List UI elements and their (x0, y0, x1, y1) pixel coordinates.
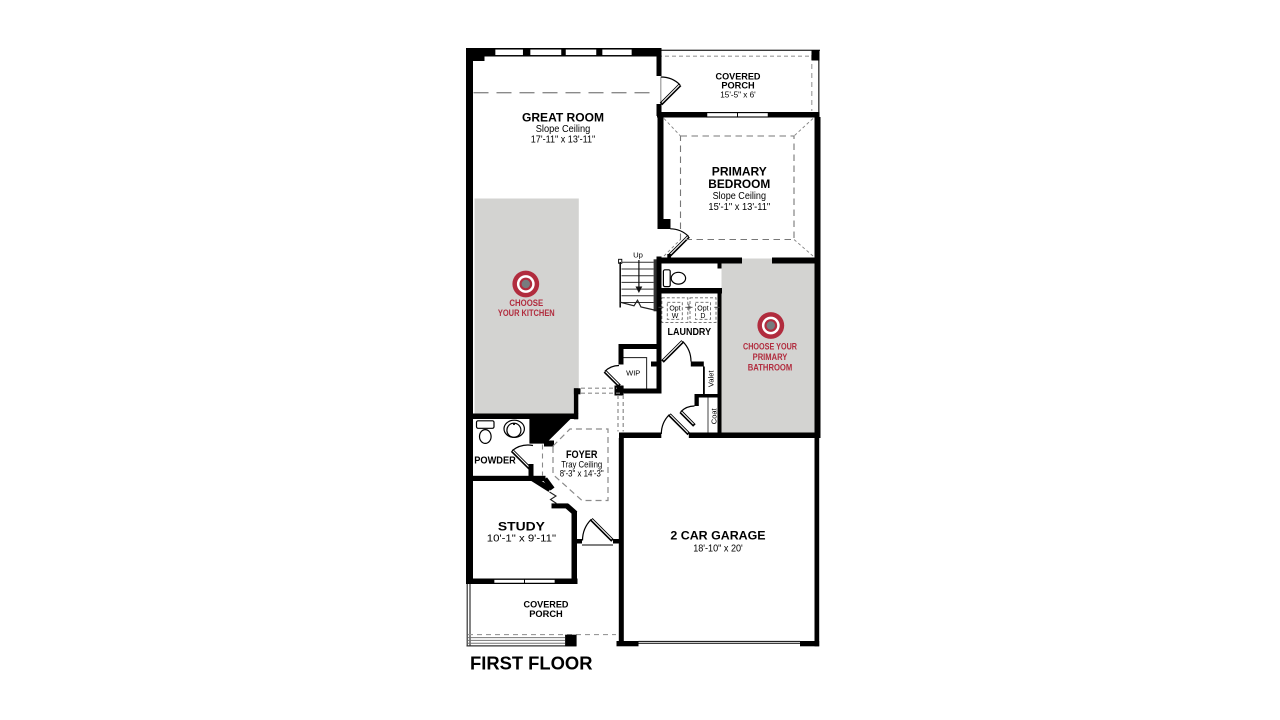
svg-text:W: W (672, 313, 679, 320)
svg-text:LAUNDRY: LAUNDRY (668, 327, 712, 338)
svg-text:FIRST FLOOR: FIRST FLOOR (470, 654, 593, 674)
svg-text:GREAT ROOM: GREAT ROOM (522, 111, 604, 125)
svg-text:D: D (700, 313, 705, 320)
svg-text:WIP: WIP (626, 369, 640, 378)
svg-text:10'-1" x 9'-11": 10'-1" x 9'-11" (487, 534, 557, 545)
svg-text:18'-10" x 20': 18'-10" x 20' (693, 544, 743, 555)
svg-text:Valet: Valet (706, 370, 715, 387)
svg-text:Slope Ceiling: Slope Ceiling (536, 124, 591, 135)
svg-text:15'-1" x 13'-11": 15'-1" x 13'-11" (708, 202, 770, 213)
svg-text:BEDROOM: BEDROOM (708, 177, 770, 191)
svg-text:Opt: Opt (669, 306, 680, 313)
svg-text:POWDER: POWDER (474, 456, 516, 467)
svg-text:2 CAR GARAGE: 2 CAR GARAGE (670, 529, 765, 543)
svg-text:Up: Up (633, 251, 643, 260)
svg-text:BATHROOM: BATHROOM (748, 363, 793, 374)
svg-text:17'-11" x 13'-11": 17'-11" x 13'-11" (531, 135, 596, 146)
svg-text:Slope Ceiling: Slope Ceiling (713, 191, 766, 202)
svg-text:8'-3" x 14'-3": 8'-3" x 14'-3" (560, 469, 604, 479)
svg-text:STUDY: STUDY (498, 520, 545, 534)
svg-text:15'-5" x 6': 15'-5" x 6' (720, 90, 756, 100)
svg-text:YOUR KITCHEN: YOUR KITCHEN (498, 308, 555, 319)
svg-text:PORCH: PORCH (529, 609, 563, 620)
svg-text:PRIMARY: PRIMARY (753, 352, 788, 363)
svg-text:Opt: Opt (697, 306, 708, 313)
svg-text:Coat: Coat (709, 407, 718, 424)
